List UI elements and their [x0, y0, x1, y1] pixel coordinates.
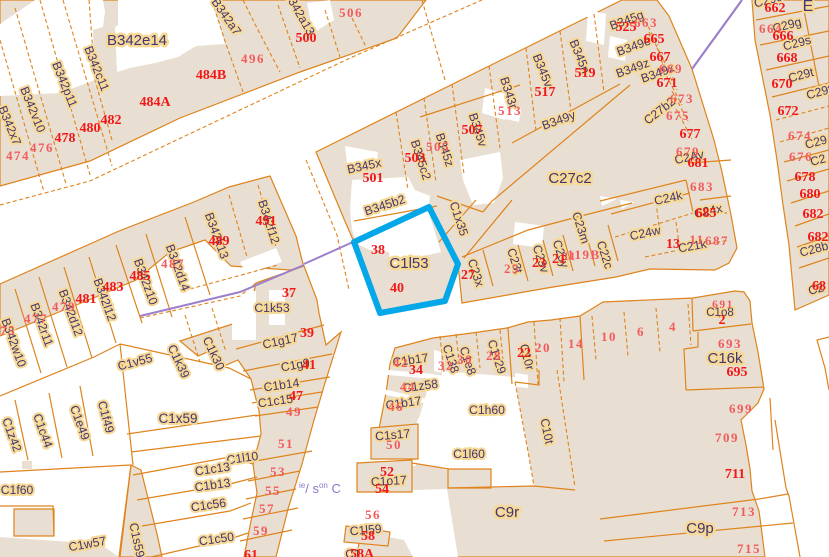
svg-text:675: 675 [666, 108, 690, 123]
svg-text:C1l53: C1l53 [389, 255, 428, 272]
svg-text:40: 40 [390, 281, 404, 296]
svg-text:37: 37 [282, 286, 296, 301]
svg-text:503: 503 [405, 151, 426, 166]
svg-text:119B: 119B [567, 247, 600, 262]
svg-text:681: 681 [688, 156, 709, 171]
svg-text:57: 57 [259, 501, 275, 516]
svg-text:483: 483 [103, 280, 124, 295]
svg-text:666: 666 [773, 29, 794, 44]
svg-text:693: 693 [718, 336, 742, 351]
svg-text:695: 695 [727, 365, 748, 380]
svg-text:53: 53 [270, 464, 286, 479]
svg-text:474: 474 [6, 148, 30, 163]
svg-text:10: 10 [601, 329, 617, 344]
svg-text:501: 501 [363, 171, 384, 186]
svg-text:49: 49 [286, 404, 302, 419]
svg-text:673: 673 [670, 91, 694, 106]
svg-text:687: 687 [705, 233, 729, 248]
svg-text:56: 56 [365, 507, 381, 522]
svg-text:38: 38 [371, 243, 385, 258]
svg-text:682: 682 [803, 207, 824, 222]
svg-text:54: 54 [375, 482, 389, 497]
svg-text:68: 68 [812, 279, 826, 294]
svg-text:C1l60: C1l60 [453, 447, 485, 461]
svg-text:482: 482 [101, 113, 122, 128]
svg-text:E: E [803, 0, 814, 15]
svg-text:500: 500 [296, 31, 317, 46]
svg-text:51: 51 [278, 436, 294, 451]
svg-text:668: 668 [777, 51, 798, 66]
svg-text:677: 677 [680, 127, 701, 142]
svg-text:21: 21 [552, 252, 566, 267]
svg-text:C1k53: C1k53 [254, 301, 289, 315]
svg-text:30: 30 [457, 352, 473, 367]
svg-text:44: 44 [400, 379, 416, 394]
svg-text:20: 20 [535, 340, 551, 355]
svg-text:477: 477 [24, 311, 48, 326]
svg-text:665: 665 [644, 32, 665, 47]
svg-text:13: 13 [666, 237, 680, 252]
svg-text:496: 496 [241, 51, 265, 66]
svg-text:674: 674 [788, 128, 812, 143]
svg-text:50: 50 [386, 437, 402, 452]
svg-text:489: 489 [209, 234, 230, 249]
svg-text:484B: 484B [196, 68, 226, 83]
svg-text:C1h60: C1h60 [469, 403, 505, 417]
svg-text:711: 711 [725, 467, 745, 482]
svg-text:505: 505 [426, 139, 450, 154]
svg-text:61: 61 [244, 548, 258, 557]
svg-text:C1f60: C1f60 [1, 483, 34, 497]
svg-text:22: 22 [517, 346, 531, 361]
svg-text:B342e14: B342e14 [107, 32, 167, 49]
svg-text:678: 678 [795, 170, 816, 185]
svg-text:C9r: C9r [495, 504, 519, 521]
svg-text:671: 671 [657, 76, 678, 91]
svg-text:11: 11 [689, 232, 704, 247]
svg-text:C1x59: C1x59 [158, 411, 197, 426]
svg-text:517: 517 [535, 85, 556, 100]
svg-text:691: 691 [712, 299, 734, 311]
svg-text:480: 480 [80, 121, 101, 136]
svg-text:484A: 484A [139, 95, 171, 110]
svg-text:672: 672 [778, 104, 799, 119]
svg-text:55: 55 [265, 483, 281, 498]
svg-text:46: 46 [388, 399, 404, 414]
svg-text:47: 47 [289, 389, 303, 404]
svg-text:41: 41 [302, 358, 316, 373]
svg-text:476: 476 [30, 140, 54, 155]
svg-text:23: 23 [532, 256, 546, 271]
svg-text:28: 28 [486, 348, 502, 363]
svg-text:475: 475 [0, 323, 16, 338]
svg-text:478: 478 [55, 131, 76, 146]
svg-text:506: 506 [339, 5, 363, 20]
svg-text:709: 709 [715, 430, 739, 445]
svg-text:34: 34 [409, 363, 423, 378]
svg-text:39: 39 [300, 326, 314, 341]
svg-text:670: 670 [772, 77, 793, 92]
svg-text:669: 669 [659, 61, 683, 76]
svg-text:680: 680 [800, 187, 821, 202]
svg-text:513: 513 [498, 103, 522, 118]
svg-text:507: 507 [462, 123, 483, 138]
svg-text:699: 699 [729, 401, 753, 416]
svg-text:683: 683 [690, 179, 714, 194]
svg-text:662: 662 [765, 1, 786, 16]
svg-text:715: 715 [737, 541, 761, 556]
svg-text:42: 42 [393, 355, 409, 370]
svg-text:663: 663 [634, 15, 658, 30]
svg-text:6: 6 [637, 324, 645, 339]
svg-text:485: 485 [130, 269, 151, 284]
svg-text:481: 481 [76, 292, 97, 307]
svg-text:676: 676 [789, 149, 813, 164]
svg-text:713: 713 [732, 504, 756, 519]
svg-text:27: 27 [461, 268, 475, 283]
svg-text:491: 491 [256, 214, 277, 229]
svg-text:479: 479 [52, 299, 76, 314]
svg-text:52: 52 [380, 465, 394, 480]
svg-text:487: 487 [161, 256, 185, 271]
svg-text:685: 685 [696, 206, 717, 221]
svg-text:59: 59 [253, 523, 269, 538]
svg-text:2: 2 [719, 313, 726, 328]
svg-text:58: 58 [361, 529, 375, 544]
svg-text:C9p: C9p [686, 520, 714, 537]
svg-text:4: 4 [669, 319, 677, 334]
svg-text:58A: 58A [350, 547, 375, 557]
svg-text:519: 519 [575, 66, 596, 81]
svg-text:32: 32 [438, 358, 454, 373]
svg-text:682: 682 [808, 230, 829, 245]
svg-text:C27c2: C27c2 [548, 170, 591, 187]
svg-text:25: 25 [504, 261, 520, 276]
svg-text:14: 14 [568, 336, 584, 351]
